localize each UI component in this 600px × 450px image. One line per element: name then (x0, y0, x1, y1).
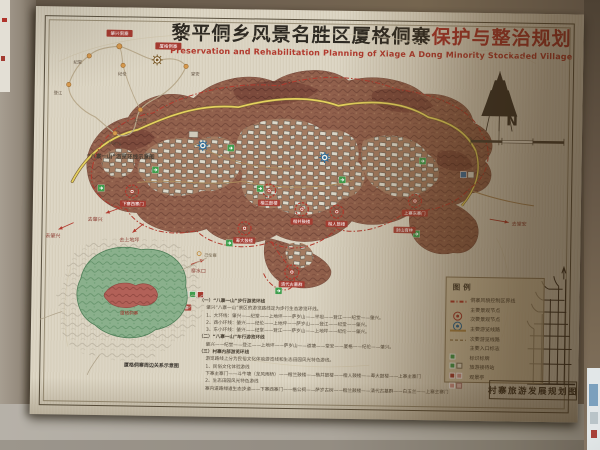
main-route-symbol (450, 330, 466, 332)
legend-title: 图例 (453, 282, 540, 294)
route-node-jilun: 纪伦 (118, 70, 127, 77)
left-poster-red-mark (2, 18, 7, 22)
floor-shadow-band (0, 440, 600, 450)
label-to-tangan: 去堂安 (512, 220, 527, 227)
planning-poster: 黎平侗乡风景名胜区厦格侗寨保护与整治规划 Preservation and Re… (30, 6, 584, 423)
route-notes-block: （一）“八寨一山”步行游览环线 肇兴“八寨一山”景区的游览路线定为步行生态游览环… (198, 298, 445, 397)
route-node-tangan: 堂安 (191, 70, 200, 77)
region-inset: 厦格侗寨 厦格侗寨周边关系示意图 (39, 236, 207, 376)
label-to-zhaoxing: 去肇兴 (88, 216, 103, 223)
boundary-line-symbol (450, 301, 466, 303)
viewpoint-icon (468, 172, 474, 178)
signage-symbol (449, 354, 465, 362)
left-poster-red-mark (1, 56, 5, 61)
bottom-caption-text: 村寨旅游发展规划图 (488, 384, 578, 397)
secondary-route-symbol (450, 339, 466, 341)
bottom-caption-box: 村寨旅游发展规划图 (489, 380, 577, 400)
neighbor-poster-left (0, 0, 10, 92)
entrance-symbol (450, 344, 466, 352)
north-letter: N (506, 113, 518, 129)
major-node-symbol (450, 306, 466, 314)
minor-node-symbol (450, 316, 466, 324)
neighbor-poster-blue-area (589, 384, 598, 406)
pavilion-symbol (449, 373, 465, 381)
neighbor-poster-gray-area (590, 412, 598, 424)
service-icon (460, 172, 466, 178)
region-inset-caption: 厦格侗寨周边关系示意图 (124, 361, 179, 369)
route-node-dengjiang: 登江 (54, 89, 63, 96)
neighbor-poster-red-area (591, 430, 597, 438)
photo-of-planning-poster: 黎平侗乡风景名胜区厦格侗寨保护与整治规划 Preservation and Re… (0, 0, 600, 450)
map-legend: 图例 侗寨风貌控制区界线 主要景观节点 次要景观节点 主要游览线路 次要游览线路 (444, 276, 545, 384)
route-node-jitang: 纪堂 (73, 59, 82, 66)
xiage-gear-icon (152, 54, 163, 65)
label-to-zhaoxing: 去肇兴 (45, 232, 60, 239)
sign-board-icon (189, 131, 198, 137)
reception-symbol (449, 363, 465, 371)
